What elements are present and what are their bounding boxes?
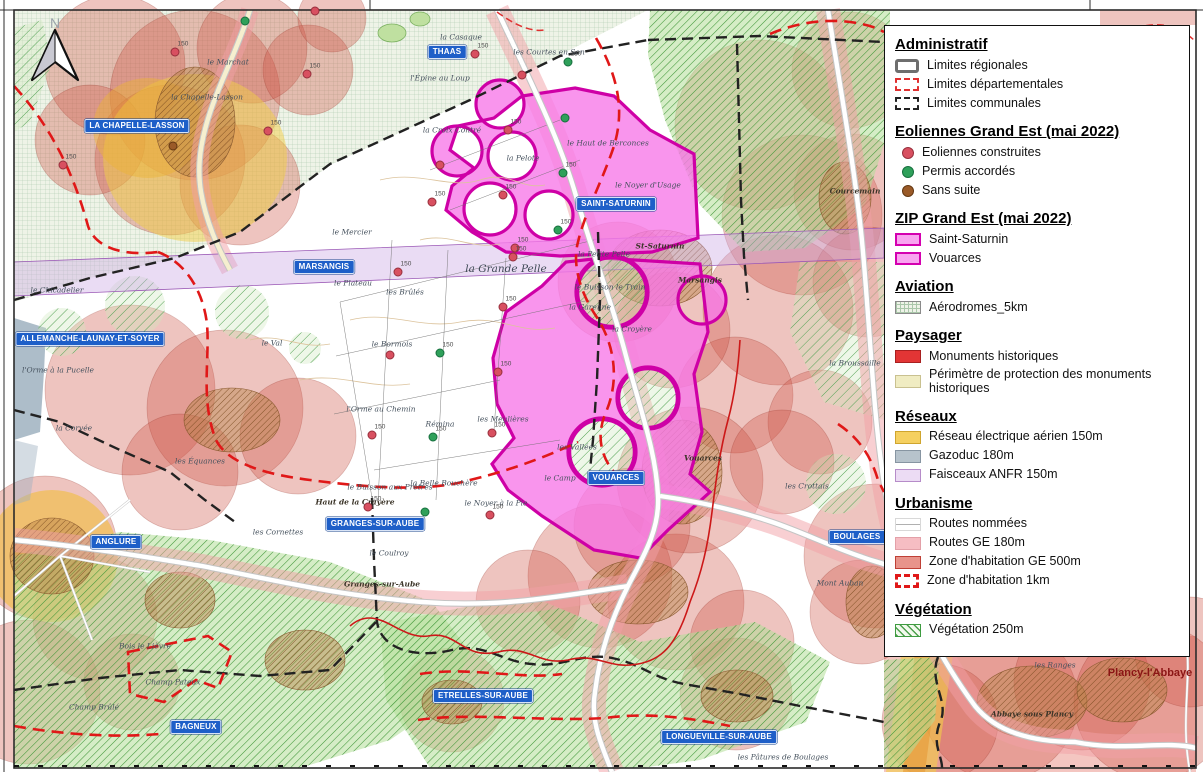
town-label: ALLEMANCHE-LAUNAY-ET-SOYER bbox=[15, 332, 164, 346]
place-label: la Broussaille bbox=[829, 359, 881, 368]
swatch-eolienne-construite bbox=[902, 147, 914, 159]
place-label: le Bormois bbox=[372, 340, 413, 349]
legend-item-label: Monuments historiques bbox=[929, 350, 1058, 364]
turbine-marker-construite: 150 bbox=[59, 161, 68, 170]
turbine-marker-construite: 150 bbox=[364, 503, 373, 512]
town-label: ANGLURE bbox=[91, 535, 142, 549]
legend-section-title: Aviation bbox=[895, 278, 1179, 295]
svg-text:N: N bbox=[50, 15, 60, 31]
legend-section-reseaux: Réseaux Réseau électrique aérien 150m Ga… bbox=[895, 408, 1179, 483]
legend-section-administratif: Administratif Limites régionales Limites… bbox=[895, 36, 1179, 111]
place-label: les Crottais bbox=[785, 482, 829, 491]
place-label: le Val bbox=[262, 339, 283, 348]
place-label: l'Orme au Chemin bbox=[346, 405, 415, 414]
town-label: SAINT-SATURNIN bbox=[576, 197, 656, 211]
place-label: le Mercier bbox=[332, 228, 372, 237]
legend-item-label: Zone d'habitation 1km bbox=[927, 574, 1050, 588]
legend-item-label: Vouarces bbox=[929, 252, 981, 266]
place-label: Marsangis bbox=[678, 276, 722, 285]
legend-section-urbanisme: Urbanisme Routes nommées Routes GE 180m … bbox=[895, 495, 1179, 589]
turbine-marker-construite: 150 bbox=[171, 48, 180, 57]
legend-item-label: Permis accordés bbox=[922, 165, 1015, 179]
legend-section-title: Eoliennes Grand Est (mai 2022) bbox=[895, 123, 1179, 140]
legend-item-label: Gazoduc 180m bbox=[929, 449, 1014, 463]
place-label: les Pâtures de Boulages bbox=[738, 753, 829, 762]
place-label: les Cornettes bbox=[253, 528, 304, 537]
swatch-zip-vouarces bbox=[895, 252, 921, 265]
legend-item-label: Limites départementales bbox=[927, 78, 1063, 92]
swatch-permis-accorde bbox=[902, 166, 914, 178]
turbine-marker-construite: 150 bbox=[509, 253, 518, 262]
legend-section-aviation: Aviation Aérodromes_5km bbox=[895, 278, 1179, 315]
legend-section-vegetation: Végétation Végétation 250m bbox=[895, 601, 1179, 638]
place-label: les Équances bbox=[175, 457, 225, 466]
legend-section-eoliennes: Eoliennes Grand Est (mai 2022) Eoliennes… bbox=[895, 123, 1179, 198]
swatch-monuments-historiques bbox=[895, 350, 921, 363]
legend-section-paysager: Paysager Monuments historiques Périmètre… bbox=[895, 327, 1179, 396]
legend-item-label: Zone d'habitation GE 500m bbox=[929, 555, 1081, 569]
town-label: MARSANGIS bbox=[294, 260, 355, 274]
map-document: N le Marchatla Chapelle-Lassonla Casaque… bbox=[0, 0, 1203, 772]
legend-section-title: ZIP Grand Est (mai 2022) bbox=[895, 210, 1179, 227]
legend-section-zip: ZIP Grand Est (mai 2022) Saint-Saturnin … bbox=[895, 210, 1179, 266]
swatch-aerodromes bbox=[895, 301, 921, 314]
turbine-marker-permis: 150 bbox=[554, 226, 563, 235]
place-label: le Coulroy bbox=[369, 549, 408, 558]
legend-item-label: Saint-Saturnin bbox=[929, 233, 1008, 247]
turbine-marker-construite: 150 bbox=[499, 191, 508, 200]
town-label: BOULAGES bbox=[829, 530, 886, 544]
turbine-marker-permis bbox=[561, 114, 570, 123]
turbine-marker-construite: 150 bbox=[471, 50, 480, 59]
turbine-marker-construite: 150 bbox=[499, 303, 508, 312]
town-label: ETRELLES-SUR-AUBE bbox=[433, 689, 533, 703]
place-label: les Ranges bbox=[1034, 661, 1075, 670]
legend-item-label: Sans suite bbox=[922, 184, 980, 198]
swatch-zone-habitation-500m bbox=[895, 556, 921, 569]
swatch-perimetre-protection bbox=[895, 375, 921, 388]
town-label: VOUARCES bbox=[588, 471, 645, 485]
turbine-marker-construite: 150 bbox=[494, 368, 503, 377]
place-label: la Croix Contré bbox=[423, 126, 481, 135]
turbine-marker-construite: 150 bbox=[488, 429, 497, 438]
place-label: Courcemain bbox=[830, 187, 881, 196]
town-label: LA CHAPELLE-LASSON bbox=[84, 119, 189, 133]
legend-item-label: Routes GE 180m bbox=[929, 536, 1025, 550]
legend-item-label: Réseau électrique aérien 150m bbox=[929, 430, 1103, 444]
town-label: GRANGES-SUR-AUBE bbox=[326, 517, 425, 531]
swatch-vegetation bbox=[895, 624, 921, 637]
turbine-marker-construite: 150 bbox=[303, 70, 312, 79]
swatch-faisceaux-anfr bbox=[895, 469, 921, 482]
place-label: Granges-sur-Aube bbox=[344, 580, 420, 589]
place-label: le Marchat bbox=[207, 58, 248, 67]
place-label: le Chicadelier bbox=[31, 286, 84, 295]
turbine-marker-construite: 150 bbox=[368, 431, 377, 440]
legend-section-title: Paysager bbox=[895, 327, 1179, 344]
town-label: BAGNEUX bbox=[170, 720, 221, 734]
place-label: la Corvée bbox=[56, 424, 92, 433]
turbine-marker-permis: 150 bbox=[564, 58, 573, 67]
turbine-marker-permis: 150 bbox=[429, 433, 438, 442]
legend-item-label: Aérodromes_5km bbox=[929, 301, 1028, 315]
place-label: la Croyère bbox=[612, 325, 652, 334]
legend-item-label: Périmètre de protection des monuments hi… bbox=[929, 368, 1179, 396]
swatch-sans-suite bbox=[902, 185, 914, 197]
turbine-marker-sans-suite bbox=[169, 142, 178, 151]
place-label: Champ Brûlé bbox=[69, 703, 119, 712]
turbine-marker-construite bbox=[518, 71, 527, 80]
turbine-marker-permis bbox=[241, 17, 250, 26]
turbine-marker-permis bbox=[421, 508, 430, 517]
swatch-zone-habitation-1km bbox=[895, 574, 919, 588]
turbine-marker-permis: 150 bbox=[559, 169, 568, 178]
turbine-marker-permis: 150 bbox=[436, 349, 445, 358]
legend-section-title: Végétation bbox=[895, 601, 1179, 618]
swatch-limites-communales bbox=[895, 97, 919, 110]
legend-item-label: Faisceaux ANFR 150m bbox=[929, 468, 1058, 482]
place-label: la Garenne bbox=[569, 303, 611, 312]
legend-section-title: Réseaux bbox=[895, 408, 1179, 425]
legend-item-label: Limites communales bbox=[927, 97, 1041, 111]
turbine-marker-construite: 150 bbox=[486, 511, 495, 520]
place-label: la Casaque bbox=[440, 33, 482, 42]
place-label: les Vallées bbox=[557, 443, 597, 452]
place-label: l'Orme à la Pucelle bbox=[22, 366, 94, 375]
turbine-marker-construite: 150 bbox=[394, 268, 403, 277]
place-label: la Belle Bouchère bbox=[410, 479, 477, 488]
legend-item-label: Eoliennes construites bbox=[922, 146, 1041, 160]
turbine-marker-construite bbox=[386, 351, 395, 360]
place-label: Vouarces bbox=[684, 454, 722, 463]
swatch-limites-departementales bbox=[895, 78, 919, 91]
swatch-reseau-electrique bbox=[895, 431, 921, 444]
legend-section-title: Urbanisme bbox=[895, 495, 1179, 512]
town-label: LONGUEVILLE-SUR-AUBE bbox=[661, 730, 777, 744]
place-label: Abbaye sous Plancy bbox=[991, 710, 1073, 719]
place-label: le Noyer d'Usage bbox=[615, 181, 681, 190]
legend-item-label: Routes nommées bbox=[929, 517, 1027, 531]
place-label: le Haut de Berconces bbox=[567, 139, 649, 148]
turbine-marker-construite: 150 bbox=[504, 126, 513, 135]
place-label: Bois le Lièvre bbox=[119, 642, 171, 651]
place-label: le Buisson le Train bbox=[575, 283, 646, 292]
place-label: le Camp bbox=[544, 474, 575, 483]
swatch-limites-regionales bbox=[895, 59, 919, 73]
legend-panel: Administratif Limites régionales Limites… bbox=[884, 25, 1190, 657]
place-label: les Brûlés bbox=[386, 288, 424, 297]
place-label: Haut de la Crayère bbox=[315, 498, 394, 507]
place-label: la Pelote bbox=[507, 154, 540, 163]
town-label: THAAS bbox=[428, 45, 467, 59]
place-label: Plancy-l'Abbaye bbox=[1108, 667, 1193, 679]
place-label: l'Épine au Loup bbox=[410, 74, 470, 83]
turbine-marker-construite bbox=[436, 161, 445, 170]
legend-section-title: Administratif bbox=[895, 36, 1179, 53]
turbine-marker-construite bbox=[311, 7, 320, 16]
place-label: la Chapelle-Lasson bbox=[171, 93, 243, 102]
place-label: Champ Pateux bbox=[145, 678, 200, 687]
place-label: St-Saturnin bbox=[636, 242, 685, 251]
legend-item-label: Végétation 250m bbox=[929, 623, 1024, 637]
swatch-zip-saint-saturnin bbox=[895, 233, 921, 246]
turbine-marker-construite: 150 bbox=[428, 198, 437, 207]
place-label: Mont Auban bbox=[817, 579, 864, 588]
place-label: la Petite Pelle bbox=[578, 250, 630, 259]
turbine-marker-construite: 150 bbox=[264, 127, 273, 136]
swatch-routes-ge bbox=[895, 537, 921, 550]
place-label: la Grande Pelle bbox=[465, 263, 546, 275]
swatch-gazoduc bbox=[895, 450, 921, 463]
place-label: le Plateau bbox=[334, 279, 372, 288]
legend-item-label: Limites régionales bbox=[927, 59, 1028, 73]
swatch-routes-nommees bbox=[895, 518, 921, 531]
